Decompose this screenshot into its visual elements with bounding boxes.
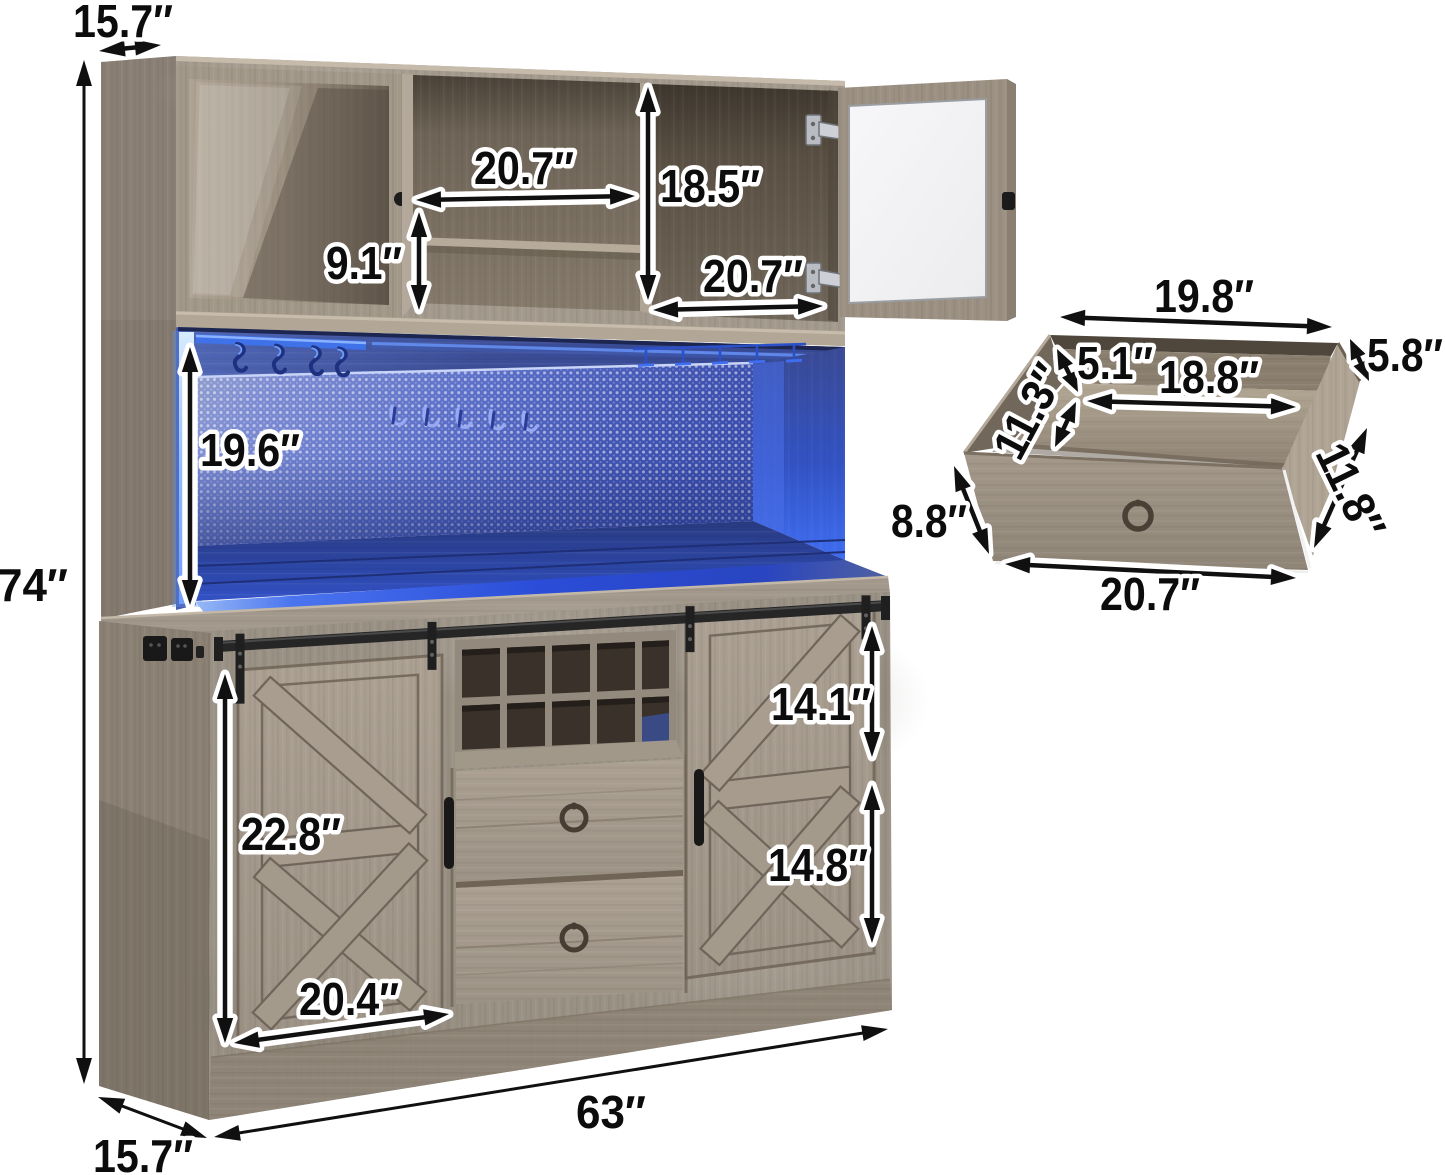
- svg-text:14.8″: 14.8″: [768, 839, 868, 891]
- svg-text:19.8″: 19.8″: [1154, 270, 1254, 322]
- svg-text:15.7″: 15.7″: [73, 0, 173, 47]
- svg-text:20.7″: 20.7″: [474, 142, 574, 194]
- svg-text:18.8″: 18.8″: [1159, 351, 1259, 403]
- svg-text:8.8″: 8.8″: [891, 495, 967, 547]
- svg-text:5.1″: 5.1″: [1077, 337, 1153, 389]
- svg-text:5.8″: 5.8″: [1367, 329, 1443, 381]
- svg-text:63″: 63″: [576, 1086, 646, 1138]
- svg-text:19.6″: 19.6″: [200, 424, 300, 476]
- svg-text:15.7″: 15.7″: [93, 1130, 193, 1175]
- svg-text:18.5″: 18.5″: [660, 160, 760, 212]
- svg-text:14.1″: 14.1″: [771, 678, 871, 730]
- svg-text:20.7″: 20.7″: [1100, 568, 1200, 620]
- svg-text:20.7″: 20.7″: [703, 250, 803, 302]
- svg-text:9.1″: 9.1″: [326, 237, 402, 289]
- svg-text:22.8″: 22.8″: [241, 808, 341, 860]
- svg-text:20.4″: 20.4″: [299, 973, 399, 1025]
- svg-text:74″: 74″: [0, 559, 68, 611]
